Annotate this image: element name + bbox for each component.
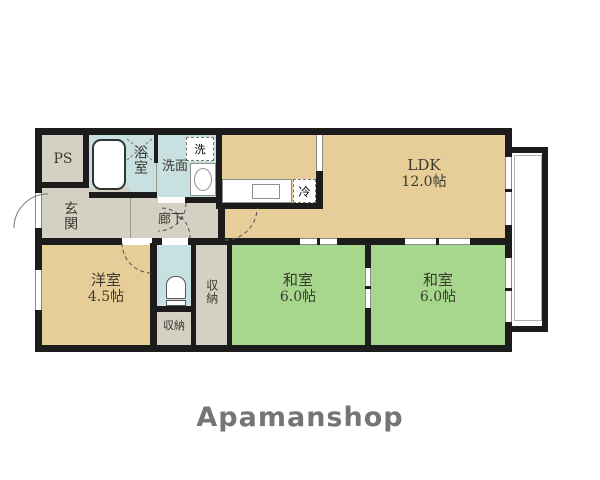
balcony-wall-bottom bbox=[512, 326, 548, 332]
wall-outer-top bbox=[35, 128, 512, 135]
sliding-door-japanese1-tick bbox=[317, 238, 320, 245]
label-washroom: 洗面 bbox=[158, 160, 192, 175]
sliding-door-between-tick bbox=[365, 286, 371, 289]
entrance-hall-line bbox=[130, 198, 131, 238]
entrance-door-gap bbox=[35, 193, 42, 228]
wall-kitchen-left bbox=[216, 135, 222, 209]
brand-logo: Apamanshop bbox=[0, 402, 600, 433]
label-ps: PS bbox=[48, 151, 78, 167]
sliding-door-japanese2-tick bbox=[436, 238, 439, 245]
wall-ps-right bbox=[83, 135, 89, 188]
wall-kitchen-bottom bbox=[216, 203, 323, 209]
washbasin-icon bbox=[190, 163, 216, 196]
label-japanese-2: 和室 6.0帖 bbox=[398, 272, 478, 305]
label-storage-hall: 収納 bbox=[157, 320, 191, 333]
label-storage-side: 収納 bbox=[204, 276, 218, 308]
western-door-gap bbox=[122, 238, 152, 245]
kitchen-pass-window bbox=[316, 135, 323, 171]
wall-storage-right bbox=[227, 243, 232, 345]
label-bath: 浴室 bbox=[132, 140, 148, 180]
washroom-door-gap bbox=[158, 197, 185, 203]
balcony-wall-right bbox=[542, 147, 548, 332]
western-window bbox=[35, 270, 42, 310]
toilet-icon bbox=[166, 276, 186, 299]
washer-label: 洗 bbox=[195, 141, 206, 157]
fridge-label: 冷 bbox=[298, 183, 310, 200]
toilet-door-gap bbox=[162, 238, 188, 245]
label-ldk: LDK 12.0帖 bbox=[384, 157, 464, 190]
label-western: 洋室 4.5帖 bbox=[66, 272, 146, 305]
ldk-window-tick bbox=[505, 189, 512, 192]
label-hallway: 廊下 bbox=[152, 213, 190, 228]
refrigerator-icon: 冷 bbox=[293, 179, 316, 203]
washbasin-bowl-icon bbox=[194, 168, 212, 191]
wall-bath-partition bbox=[154, 135, 158, 163]
label-entrance: 玄関 bbox=[62, 195, 78, 237]
wall-bath-bottom bbox=[89, 192, 157, 198]
floorplan-canvas: 洗 冷 bbox=[0, 0, 600, 480]
bathtub-icon bbox=[92, 139, 126, 190]
japanese2-window-tick bbox=[505, 288, 512, 291]
balcony-inner-line bbox=[514, 155, 542, 321]
wall-toilet-bottom bbox=[157, 306, 196, 312]
wall-western-right bbox=[150, 243, 157, 345]
bath-door-line bbox=[156, 163, 157, 192]
wall-kitchen-right bbox=[316, 171, 323, 209]
kitchen-sink-icon bbox=[252, 184, 280, 199]
wall-outer-bottom bbox=[35, 345, 512, 352]
washing-machine-icon: 洗 bbox=[186, 137, 214, 161]
wall-toilet-right bbox=[191, 243, 196, 345]
label-japanese-1: 和室 6.0帖 bbox=[258, 272, 338, 305]
wall-ps-bottom bbox=[42, 182, 89, 188]
